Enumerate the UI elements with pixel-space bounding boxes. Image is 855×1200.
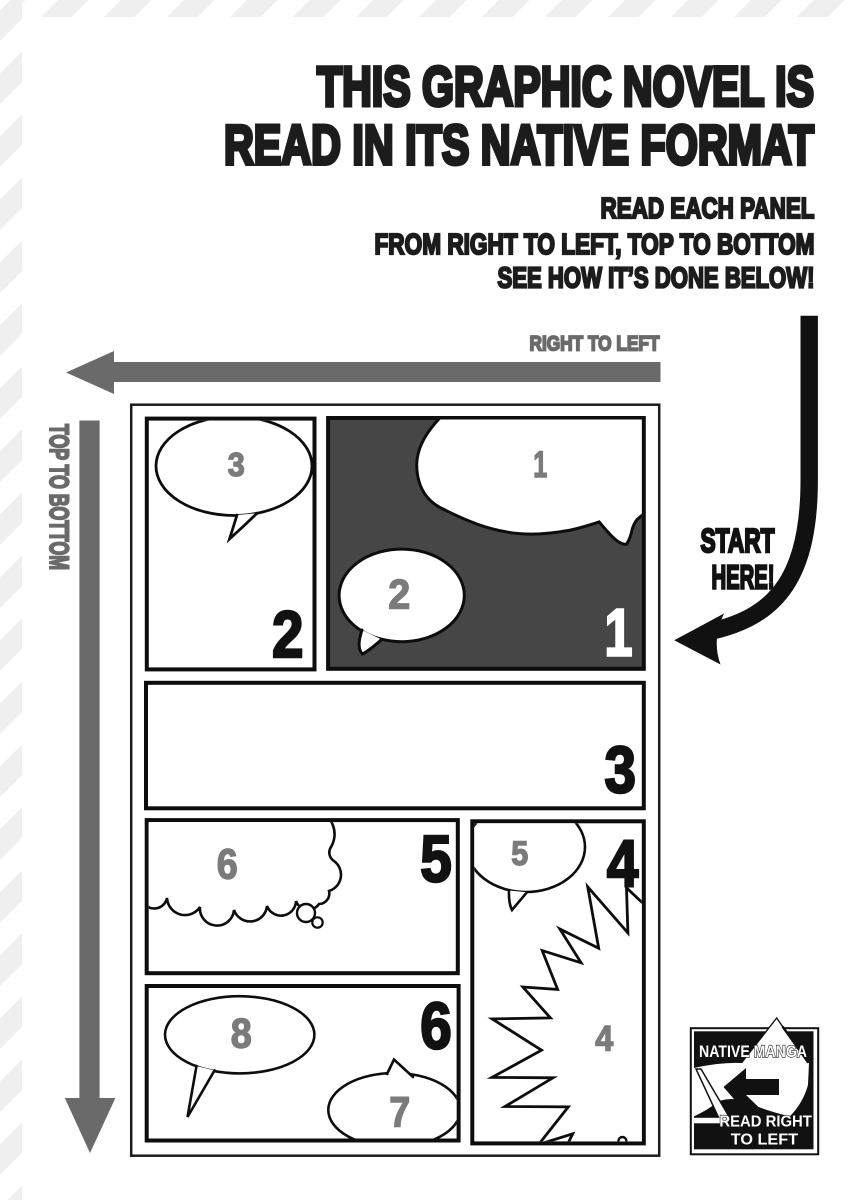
svg-text:READ RIGHT: READ RIGHT xyxy=(719,1113,812,1130)
svg-text:3: 3 xyxy=(228,447,245,484)
svg-text:8: 8 xyxy=(231,1009,252,1056)
svg-text:FROM RIGHT TO LEFT, TOP TO BOT: FROM RIGHT TO LEFT, TOP TO BOTTOM xyxy=(375,229,815,261)
svg-text:HERE!: HERE! xyxy=(712,560,775,597)
svg-text:4: 4 xyxy=(607,826,639,900)
svg-text:SEE HOW IT’S DONE BELOW!: SEE HOW IT’S DONE BELOW! xyxy=(498,263,815,295)
svg-text:1: 1 xyxy=(605,596,633,671)
svg-text:2: 2 xyxy=(388,570,410,617)
svg-text:5: 5 xyxy=(511,835,528,873)
svg-text:2: 2 xyxy=(272,597,304,671)
svg-text:NATIVE MANGA: NATIVE MANGA xyxy=(699,1042,807,1061)
svg-text:3: 3 xyxy=(605,733,637,807)
svg-text:READ IN ITS NATIVE FORMAT: READ IN ITS NATIVE FORMAT xyxy=(224,113,814,176)
svg-text:4: 4 xyxy=(595,1020,613,1059)
svg-text:5: 5 xyxy=(420,822,452,896)
svg-text:RIGHT TO LEFT: RIGHT TO LEFT xyxy=(530,333,660,356)
svg-text:6: 6 xyxy=(217,842,238,889)
svg-text:6: 6 xyxy=(420,989,452,1063)
svg-text:THIS GRAPHIC NOVEL IS: THIS GRAPHIC NOVEL IS xyxy=(317,55,814,118)
svg-text:TO LEFT: TO LEFT xyxy=(731,1131,799,1148)
svg-text:READ EACH PANEL: READ EACH PANEL xyxy=(601,193,815,225)
svg-text:7: 7 xyxy=(389,1090,410,1137)
svg-text:1: 1 xyxy=(533,443,547,485)
svg-text:START: START xyxy=(701,523,775,560)
svg-text:TOP TO BOTTOM: TOP TO BOTTOM xyxy=(44,424,74,570)
